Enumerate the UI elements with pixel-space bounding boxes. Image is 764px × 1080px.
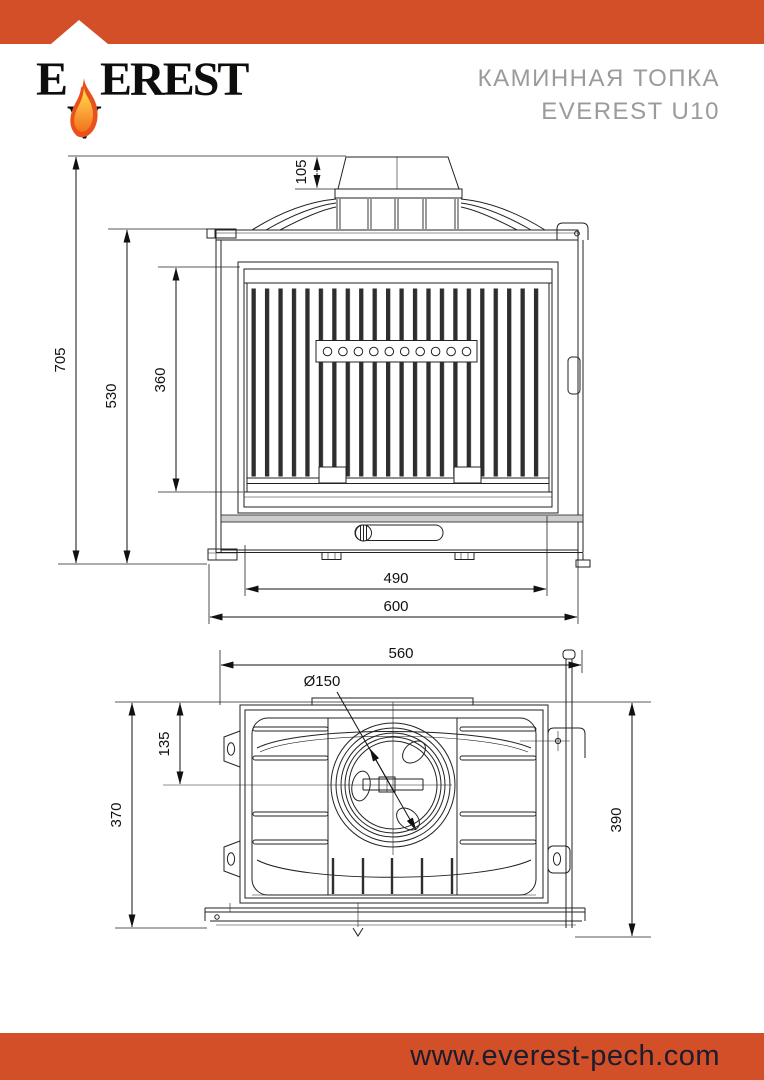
dim-overall-depth: 390 <box>575 703 651 937</box>
technical-drawing: 105 705 530 360 490 600 <box>0 0 764 1080</box>
dim-overall-width-label: 600 <box>383 598 408 615</box>
dim-top-width: 560 <box>220 645 582 705</box>
dim-overall-depth-label: 390 <box>608 807 625 832</box>
flue-collar <box>335 157 462 198</box>
dim-depth-label: 370 <box>108 802 125 827</box>
dim-flue-offset: 135 <box>156 703 180 784</box>
dim-flue-height-label: 105 <box>293 159 310 184</box>
dim-depth: 370 <box>108 702 651 928</box>
dim-body-height: 530 <box>103 229 218 563</box>
dim-glass-height-label: 360 <box>152 367 169 392</box>
grill-bars <box>247 289 549 484</box>
top-view-drawing: 560 Ø150 135 370 390 <box>108 645 651 937</box>
dim-flue-diameter: Ø150 <box>304 673 416 830</box>
dim-glass-height: 360 <box>152 267 243 492</box>
top-body <box>240 698 548 903</box>
dim-flue-height: 105 <box>68 156 346 189</box>
dim-flue-diameter-label: Ø150 <box>304 673 341 690</box>
footer-banner: www.everest-pech.com <box>0 1033 764 1080</box>
front-view-drawing: 105 705 530 360 490 600 <box>52 156 590 624</box>
base-plate <box>205 903 585 936</box>
air-strip <box>316 341 477 363</box>
dim-top-width-label: 560 <box>388 645 413 662</box>
flue-opening <box>163 702 455 855</box>
dome <box>252 199 545 230</box>
base-section <box>208 492 590 567</box>
damper-rod <box>563 650 575 928</box>
dim-flue-offset-label: 135 <box>156 731 173 756</box>
dim-overall-height-label: 705 <box>52 347 69 372</box>
dim-body-height-label: 530 <box>103 383 120 408</box>
dim-overall-height: 705 <box>52 157 207 564</box>
website-url: www.everest-pech.com <box>410 1033 720 1080</box>
dim-base-width-label: 490 <box>383 570 408 587</box>
